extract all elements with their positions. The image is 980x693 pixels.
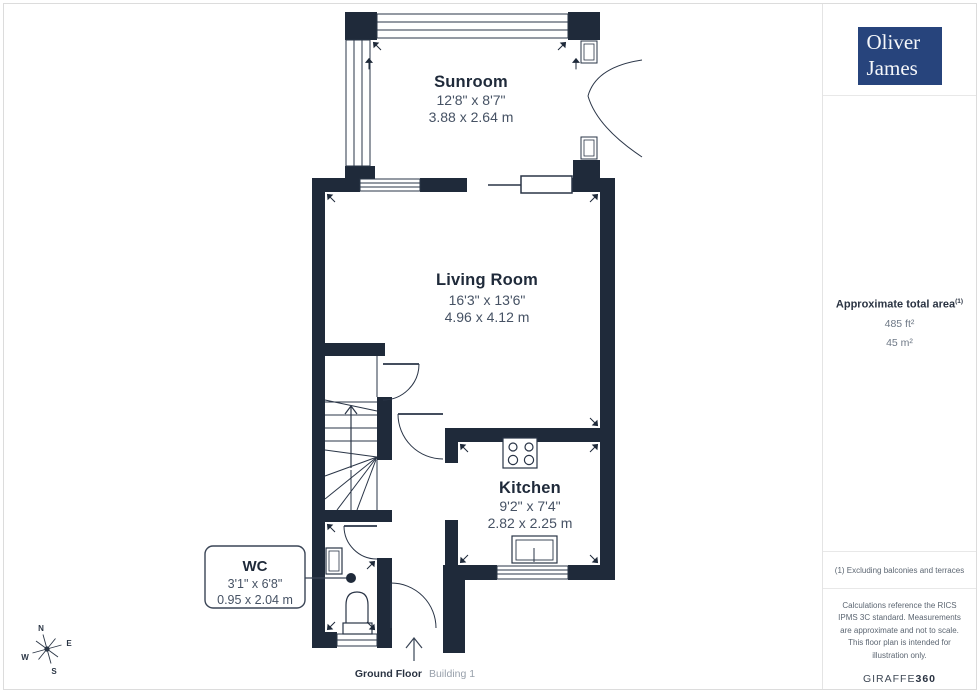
room-dim-imperial-sunroom: 12'8" x 8'7" — [437, 92, 506, 108]
callout-dot — [346, 573, 356, 583]
stairs-icon — [325, 356, 377, 510]
room-dim-metric-living-room: 4.96 x 4.12 m — [445, 309, 530, 325]
compass-east-label: E — [66, 639, 72, 648]
entry-door-icon — [391, 583, 436, 628]
room-dim-imperial-kitchen: 9'2" x 7'4" — [499, 498, 560, 514]
wc-sink-icon — [326, 548, 342, 574]
giraffe360-logo: GIRAFFE360 — [836, 671, 963, 687]
living-room-window-icon — [360, 179, 420, 191]
doors — [344, 41, 642, 628]
toilet-icon — [343, 592, 372, 634]
room-dim-metric-wc: 0.95 x 2.04 m — [217, 593, 293, 607]
sunroom-left-window-icon — [346, 40, 370, 166]
compass-rose: N E S W — [21, 624, 72, 676]
compass-west-label: W — [21, 653, 29, 662]
logo-section: Oliver James — [823, 4, 976, 95]
total-area-label: Approximate total area(1) — [836, 298, 963, 311]
french-doors-icon — [581, 41, 642, 159]
living-room-door-icon — [383, 364, 419, 400]
disclaimer-text: Calculations reference the RICS IPMS 3C … — [836, 600, 963, 662]
stove-icon — [503, 438, 537, 468]
floorplan-page: Sunroom 12'8" x 8'7" 3.88 x 2.64 m Livin… — [0, 0, 980, 693]
kitchen-door-icon — [398, 414, 443, 459]
room-label-sunroom: Sunroom — [434, 73, 508, 91]
room-dim-imperial-wc: 3'1" x 6'8" — [228, 577, 283, 591]
kitchen-sink-icon — [512, 536, 557, 563]
logo-line-1: Oliver — [867, 30, 942, 56]
floor-caption: Ground FloorBuilding 1 — [260, 668, 570, 680]
sunroom-top-window-icon — [377, 14, 568, 38]
room-label-wc: WC — [243, 558, 268, 575]
fixtures — [326, 438, 557, 634]
total-area-label-text: Approximate total area — [836, 299, 955, 311]
room-dim-metric-sunroom: 3.88 x 2.64 m — [429, 109, 514, 125]
room-label-kitchen: Kitchen — [499, 479, 561, 497]
building-name: Building 1 — [429, 668, 475, 680]
room-dim-metric-kitchen: 2.82 x 2.25 m — [488, 515, 573, 531]
floor-plan-drawing: Sunroom 12'8" x 8'7" 3.88 x 2.64 m Livin… — [0, 0, 822, 693]
info-sidebar: Oliver James Approximate total area(1) 4… — [822, 4, 976, 689]
compass-north-label: N — [38, 624, 44, 633]
provider-name-regular: GIRAFFE — [863, 673, 916, 685]
provider-name-bold: 360 — [915, 673, 936, 685]
compass-south-label: S — [51, 667, 57, 676]
footnote-text: (1) Excluding balconies and terraces — [835, 566, 964, 575]
sliding-door-icon — [488, 176, 572, 193]
room-label-living-room: Living Room — [436, 271, 538, 289]
room-dim-imperial-living-room: 16'3" x 13'6" — [449, 292, 526, 308]
logo-line-2: James — [867, 56, 942, 82]
disclaimer-section: Calculations reference the RICS IPMS 3C … — [823, 588, 976, 689]
footnote-marker: (1) — [955, 298, 963, 305]
total-area-imperial: 485 ft² — [885, 318, 915, 330]
kitchen-window-icon — [497, 566, 568, 579]
entrance-arrow-icon — [406, 638, 422, 661]
wc-door-icon — [344, 526, 377, 559]
total-area-section: Approximate total area(1) 485 ft² 45 m² — [823, 95, 976, 551]
total-area-metric: 45 m² — [886, 337, 913, 349]
footnote-section: (1) Excluding balconies and terraces — [823, 551, 976, 588]
oliver-james-logo: Oliver James — [858, 27, 942, 85]
floor-name: Ground Floor — [355, 668, 422, 680]
wc-window-icon — [337, 634, 377, 646]
